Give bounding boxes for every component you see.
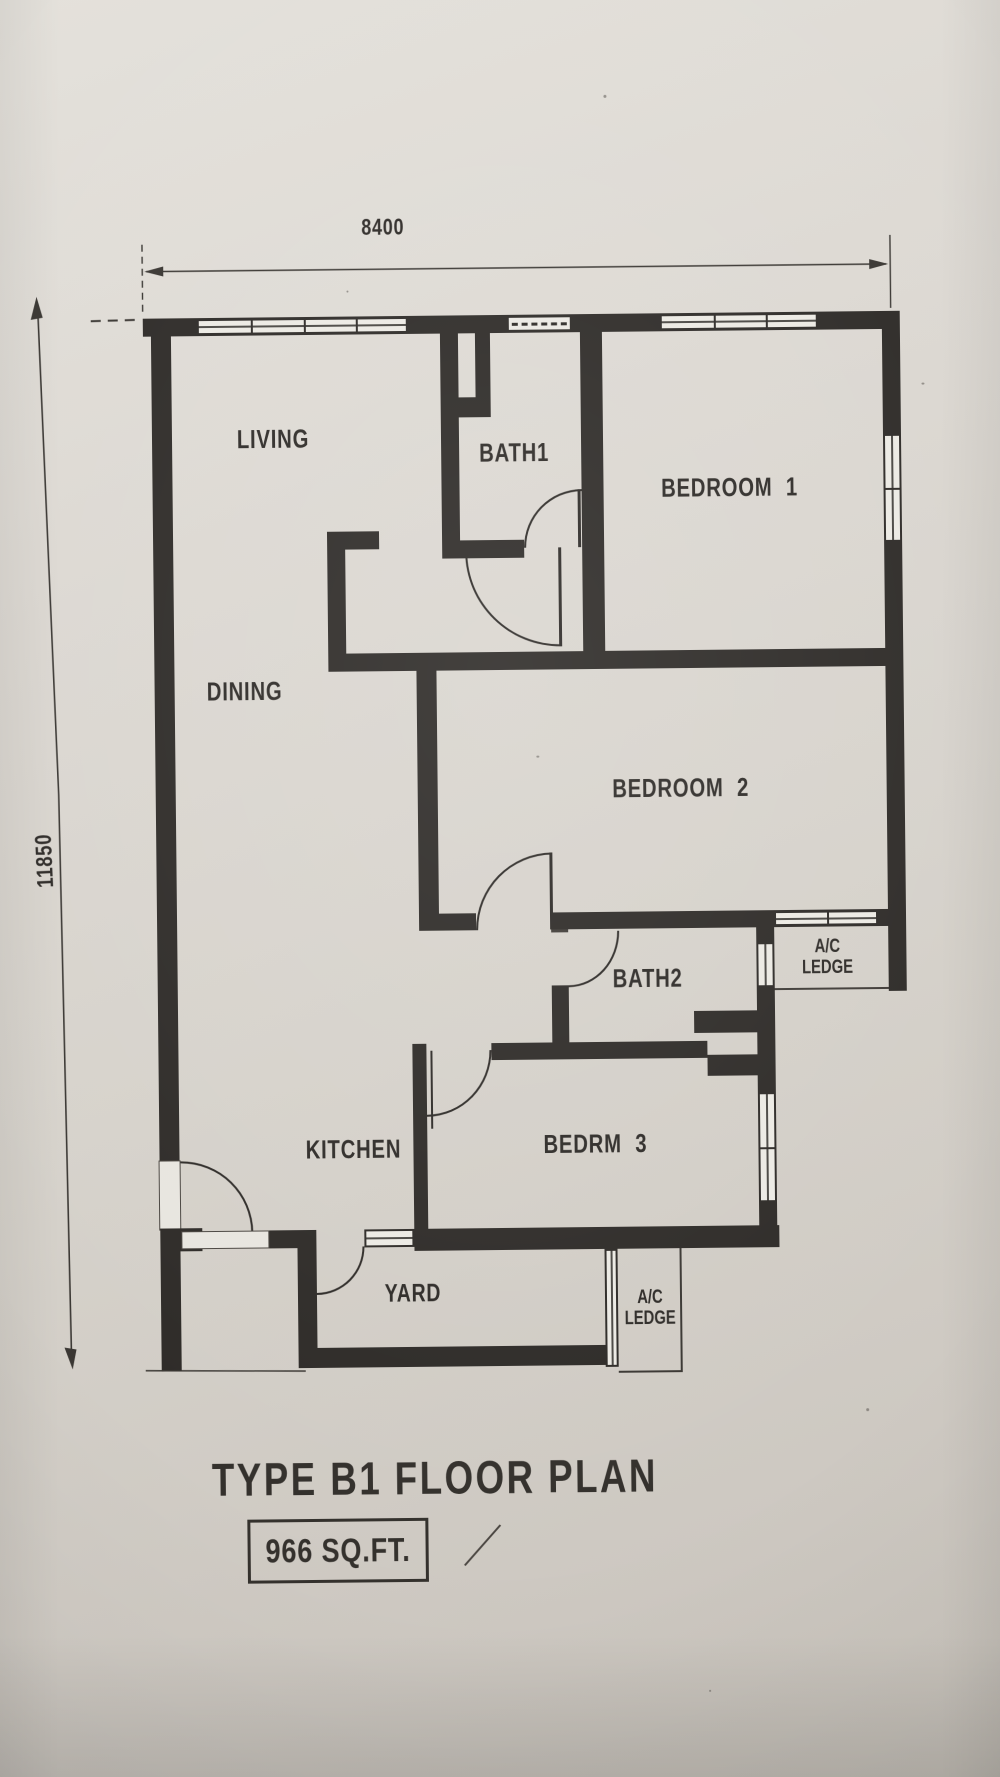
room-label-bath1: BATH1 — [479, 437, 549, 469]
wall-bedrm3-top — [491, 1041, 707, 1060]
paper-speck — [346, 291, 348, 293]
ac-ledge-lower-line1: A/C — [624, 1288, 675, 1309]
window-kitchen-yard — [364, 1229, 414, 1248]
plan-title: TYPE B1 FLOOR PLAN — [212, 1448, 659, 1507]
door-arc-bedroom2 — [475, 852, 553, 930]
ac-ledge-upper-line2: LEDGE — [802, 957, 853, 978]
floor-plan-photo: LIVING BATH1 BEDROOM 1 DINING BEDROOM 2 … — [0, 0, 1000, 1777]
room-label-bedroom1: BEDROOM 1 — [661, 471, 798, 503]
door-arc-bedrm3 — [426, 1050, 492, 1117]
dimension-height-label: 11850 — [30, 833, 59, 888]
jamb-bath2 — [551, 929, 568, 932]
paper-speck — [603, 95, 606, 98]
wall-bath2-left — [552, 985, 570, 1044]
floor-plan-drawing: LIVING BATH1 BEDROOM 1 DINING BEDROOM 2 … — [0, 0, 1000, 1777]
wall-bath1-left — [440, 318, 461, 558]
area-label: 966 SQ.FT. — [265, 1531, 410, 1571]
wall-bedrm3-bottom — [414, 1225, 779, 1251]
wall-bath1-duct — [475, 332, 491, 397]
wall-kitchen-bottom — [269, 1230, 316, 1248]
paper-speck — [709, 1690, 711, 1692]
window-bath2-right — [756, 942, 774, 987]
wall-bath2-bar-a — [694, 1010, 775, 1033]
window-living-top — [197, 317, 408, 335]
wall-bath2-bar-b — [707, 1054, 775, 1076]
window-yard-ledge-divider — [604, 1249, 618, 1367]
window-ac-ledge-upper — [774, 910, 878, 926]
door-leaf-bath1 — [578, 489, 582, 547]
door-leaf-bedroom2 — [549, 852, 553, 929]
wall-hall-stub — [327, 531, 379, 550]
paper-speck — [536, 756, 539, 758]
wall-yard-bottom — [299, 1345, 618, 1368]
ac-ledge-upper-line1: A/C — [802, 937, 853, 958]
room-label-bedrm3: BEDRM 3 — [543, 1128, 647, 1160]
area-box: 966 SQ.FT. — [247, 1518, 429, 1584]
paper-speck — [921, 383, 924, 385]
room-label-dining: DINING — [207, 676, 283, 708]
door-arc-left-wall — [181, 1161, 254, 1234]
door-arc-bath1 — [524, 489, 583, 548]
room-label-yard: YARD — [385, 1279, 442, 1309]
paper-speck — [866, 1408, 869, 1411]
door-opening-left-wall — [159, 1160, 182, 1230]
room-label-bath2: BATH2 — [613, 963, 683, 995]
ac-ledge-lower-line2: LEDGE — [625, 1308, 676, 1329]
wall-bedroom1-left — [582, 557, 605, 653]
window-bedroom1-top — [660, 313, 818, 331]
wall-bedroom2-bottom-w — [419, 913, 476, 931]
door-leaf-hall — [558, 547, 562, 646]
wall-bedroom-divider — [328, 648, 903, 672]
dimension-width-label: 8400 — [361, 213, 404, 240]
door-arc-hall — [465, 551, 561, 647]
room-label-living: LIVING — [237, 423, 310, 455]
ledge-upper-bottom-line — [775, 987, 889, 990]
wall-bath1-right — [580, 317, 605, 557]
wall-bath1-duct-bar — [441, 397, 491, 418]
room-label-ac-ledge-upper: A/C LEDGE — [802, 937, 853, 979]
window-bedroom1-right — [883, 434, 902, 542]
opening-kitchen-left — [181, 1230, 269, 1249]
wall-bedroom2-left — [416, 671, 439, 931]
window-bath1-top — [507, 315, 572, 332]
room-label-ac-ledge-lower: A/C LEDGE — [624, 1288, 675, 1330]
room-label-kitchen: KITCHEN — [305, 1134, 401, 1166]
room-label-bedroom2: BEDROOM 2 — [612, 772, 749, 804]
door-arc-yard — [316, 1246, 365, 1295]
wall-yard-left — [297, 1248, 317, 1350]
window-bedrm3-right — [758, 1092, 777, 1202]
